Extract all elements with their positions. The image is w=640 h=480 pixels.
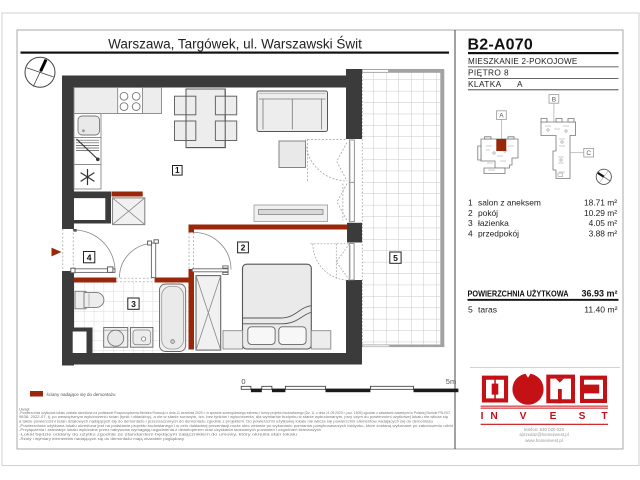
svg-text:www.homeinvest.pl: www.homeinvest.pl [525, 438, 563, 443]
svg-text:5: 5 [468, 305, 473, 315]
svg-text:taras: taras [478, 305, 497, 315]
svg-text:salon z aneksem: salon z aneksem [478, 197, 541, 207]
svg-text:ściany nadające się do demonta: ściany nadające się do demontażu [47, 392, 117, 397]
svg-text:V: V [520, 411, 527, 422]
svg-text:11.40 m²: 11.40 m² [584, 305, 617, 315]
svg-text:N: N [490, 411, 497, 422]
svg-text:KLATKA: KLATKA [468, 79, 502, 89]
svg-text:MIESZKANIE 2-POKOJOWE: MIESZKANIE 2-POKOJOWE [468, 57, 578, 66]
svg-text:B: B [552, 96, 556, 103]
svg-text:0: 0 [241, 377, 245, 386]
svg-text:Warszawa, Targówek, ul. Warsza: Warszawa, Targówek, ul. Warszawski Świt [108, 37, 362, 52]
svg-text:przedpokój: przedpokój [478, 229, 519, 239]
svg-text:18.71 m²: 18.71 m² [584, 197, 617, 207]
svg-text:T: T [601, 411, 608, 422]
svg-text:A: A [517, 79, 523, 89]
svg-text:B2-A070: B2-A070 [468, 37, 533, 54]
svg-text:-Przyłączenia i aranżacje loka: -Przyłączenia i aranżacje lokalu wykonan… [19, 428, 321, 432]
svg-text:4: 4 [468, 229, 473, 239]
svg-text:sprzedaz@homeinvest.pl: sprzedaz@homeinvest.pl [519, 432, 568, 437]
svg-text:łazienka: łazienka [478, 218, 509, 228]
svg-text:4: 4 [87, 252, 92, 262]
svg-text:S: S [579, 411, 586, 422]
svg-text:POWIERZCHNIA UŻYTKOWA: POWIERZCHNIA UŻYTKOWA [468, 289, 569, 299]
svg-text:-Powierzchnia użytkowa lokalu: -Powierzchnia użytkowa lokalu została ok… [19, 411, 450, 415]
svg-text:5m: 5m [446, 377, 456, 386]
svg-text:a także powierzchni ścian dzia: a także powierzchni ścian działowych nad… [19, 420, 433, 424]
svg-text:1: 1 [175, 166, 180, 175]
svg-text:2: 2 [241, 243, 246, 253]
svg-text:2: 2 [468, 208, 473, 218]
svg-text:36.93 m²: 36.93 m² [581, 289, 617, 299]
svg-text:1: 1 [468, 197, 473, 207]
svg-text:4.05 m²: 4.05 m² [589, 218, 618, 228]
svg-text:10.29 m²: 10.29 m² [584, 208, 617, 218]
svg-text:3: 3 [468, 218, 473, 228]
svg-text:-Rzuty i wymiary elementów nad: -Rzuty i wymiary elementów nadających si… [19, 437, 184, 441]
svg-text:I: I [481, 411, 484, 422]
svg-text:C: C [586, 150, 591, 157]
svg-text:3: 3 [131, 299, 136, 309]
svg-text:PIĘTRO 8: PIĘTRO 8 [468, 68, 509, 78]
svg-text:pokój: pokój [478, 208, 498, 218]
svg-text:3.88 m²: 3.88 m² [589, 229, 618, 239]
svg-text:5: 5 [393, 253, 398, 263]
svg-text:A: A [499, 113, 504, 120]
svg-text:E: E [550, 411, 557, 422]
